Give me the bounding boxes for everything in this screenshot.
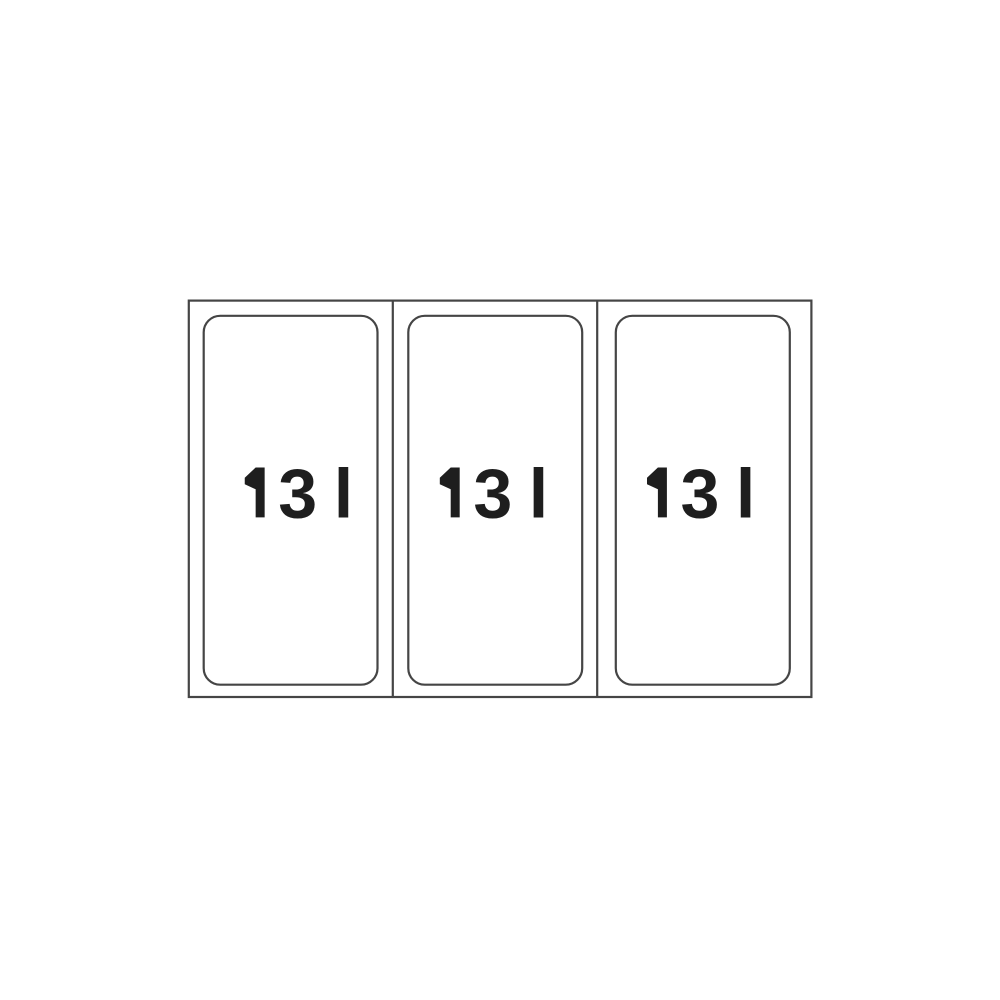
svg-text:3: 3	[681, 455, 720, 533]
svg-text:l: l	[334, 455, 353, 533]
svg-text:l: l	[529, 455, 548, 533]
svg-text:3: 3	[473, 455, 512, 533]
svg-text:3: 3	[278, 455, 317, 533]
svg-text:l: l	[736, 455, 755, 533]
